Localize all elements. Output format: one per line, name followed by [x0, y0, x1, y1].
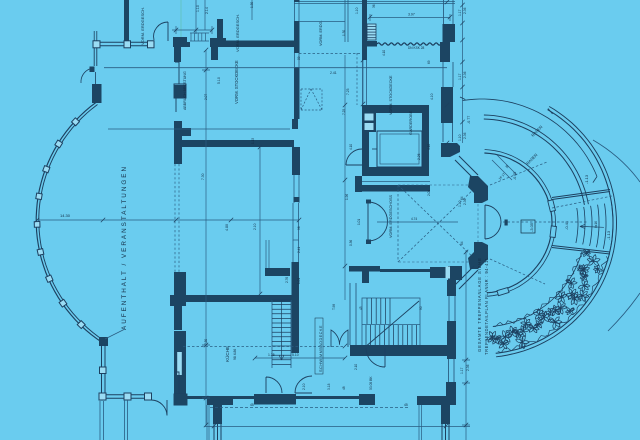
svg-text:45: 45	[404, 403, 408, 407]
svg-text:2.36: 2.36	[466, 364, 470, 371]
svg-text:2.36: 2.36	[463, 71, 467, 78]
svg-text:ABBRUCH BRÜSTUNG: ABBRUCH BRÜSTUNG	[183, 71, 187, 110]
svg-text:VORM. STOCKDECKE: VORM. STOCKDECKE	[234, 60, 239, 104]
svg-text:2.10: 2.10	[302, 383, 306, 390]
svg-text:4.10: 4.10	[430, 93, 434, 100]
svg-text:2.01: 2.01	[427, 190, 431, 196]
svg-text:1.10: 1.10	[196, 5, 200, 12]
svg-text:0.36: 0.36	[349, 240, 353, 246]
svg-text:-0.41: -0.41	[564, 220, 569, 230]
svg-text:5.10: 5.10	[217, 77, 221, 84]
svg-text:4.74: 4.74	[411, 217, 417, 221]
svg-text:3.97: 3.97	[408, 13, 415, 17]
svg-text:-1.13: -1.13	[584, 174, 589, 184]
svg-text:3.18: 3.18	[327, 383, 331, 390]
svg-text:96: 96	[297, 226, 301, 230]
svg-text:2.07: 2.07	[204, 94, 208, 100]
svg-text:VORM. ERDGESCH.: VORM. ERDGESCH.	[235, 14, 240, 52]
svg-text:1.96: 1.96	[345, 194, 349, 200]
svg-text:4.10: 4.10	[382, 50, 386, 56]
svg-text:7.25: 7.25	[346, 88, 350, 95]
svg-text:GESAMTE TREPPENANLAGE SIEHE: GESAMTE TREPPENANLAGE SIEHE	[477, 257, 482, 352]
svg-text:2.36: 2.36	[463, 132, 467, 139]
svg-text:1.01: 1.01	[297, 278, 301, 284]
svg-text:-0.77: -0.77	[467, 116, 471, 124]
svg-text:2.76: 2.76	[285, 277, 289, 283]
svg-text:14.30: 14.30	[60, 213, 71, 218]
svg-text:2.10: 2.10	[354, 364, 358, 370]
svg-text:2.36: 2.36	[463, 7, 467, 14]
svg-text:48: 48	[342, 386, 346, 390]
svg-text:VORM. STOCKDECKE: VORM. STOCKDECKE	[389, 75, 393, 115]
svg-text:TREPPENDETAILPLAN PLANNR : 94-: TREPPENDETAILPLAN PLANNR : 94-411	[484, 257, 489, 355]
svg-text:1.30: 1.30	[342, 30, 346, 36]
svg-text:03.05 BK: 03.05 BK	[369, 376, 373, 390]
svg-text:69: 69	[427, 60, 431, 64]
svg-text:98 4.86: 98 4.86	[233, 349, 237, 360]
svg-text:7.30: 7.30	[201, 173, 205, 180]
svg-text:45: 45	[359, 306, 363, 310]
svg-text:VORM. ERDGESCH.: VORM. ERDGESCH.	[140, 7, 145, 45]
svg-text:64: 64	[460, 241, 464, 245]
svg-text:1.15: 1.15	[251, 138, 255, 144]
svg-text:VORM. ERDGESCHOSS: VORM. ERDGESCHOSS	[389, 194, 393, 238]
svg-text:-3.05: -3.05	[529, 222, 534, 232]
svg-text:45: 45	[250, 403, 254, 407]
svg-text:09: 09	[297, 56, 301, 60]
svg-text:1.10: 1.10	[355, 7, 359, 14]
svg-text:1.17: 1.17	[458, 9, 462, 16]
svg-text:2.14: 2.14	[205, 7, 209, 14]
svg-text:1.10: 1.10	[458, 134, 462, 141]
svg-text:2.41: 2.41	[297, 247, 301, 253]
svg-text:4.80: 4.80	[225, 224, 229, 231]
svg-text:2.26: 2.26	[417, 153, 421, 160]
svg-text:1.17: 1.17	[460, 367, 464, 374]
svg-text:1.25: 1.25	[268, 353, 275, 357]
svg-text:90: 90	[419, 306, 423, 310]
svg-text:1.30: 1.30	[250, 2, 254, 8]
svg-text:64: 64	[460, 196, 464, 200]
svg-text:5.10: 5.10	[292, 353, 299, 357]
svg-text:1.01: 1.01	[357, 219, 361, 225]
svg-text:DN KSK 28: DN KSK 28	[408, 46, 425, 50]
svg-text:VORM. ERDG.: VORM. ERDG.	[319, 20, 323, 46]
svg-text:2.41: 2.41	[330, 71, 337, 75]
svg-text:8x16: 8x16	[594, 221, 598, 228]
svg-text:T.98: T.98	[332, 304, 336, 310]
svg-text:-1.13: -1.13	[606, 230, 611, 240]
svg-text:AUFENTHALT / VERANSTALTUNGEN: AUFENTHALT / VERANSTALTUNGEN	[121, 165, 128, 330]
svg-text:36: 36	[372, 4, 376, 8]
svg-text:2.10: 2.10	[253, 223, 257, 230]
svg-text:4.10: 4.10	[427, 144, 431, 150]
svg-text:1.17: 1.17	[458, 73, 462, 80]
svg-text:SCHWIMMBADDECKE: SCHWIMMBADDECKE	[318, 325, 323, 372]
svg-text:GARDEROBE: GARDEROBE	[409, 110, 413, 135]
svg-text:KÜCHE: KÜCHE	[224, 346, 230, 362]
svg-text:7.25: 7.25	[342, 109, 346, 115]
svg-text:4.10: 4.10	[349, 144, 353, 150]
